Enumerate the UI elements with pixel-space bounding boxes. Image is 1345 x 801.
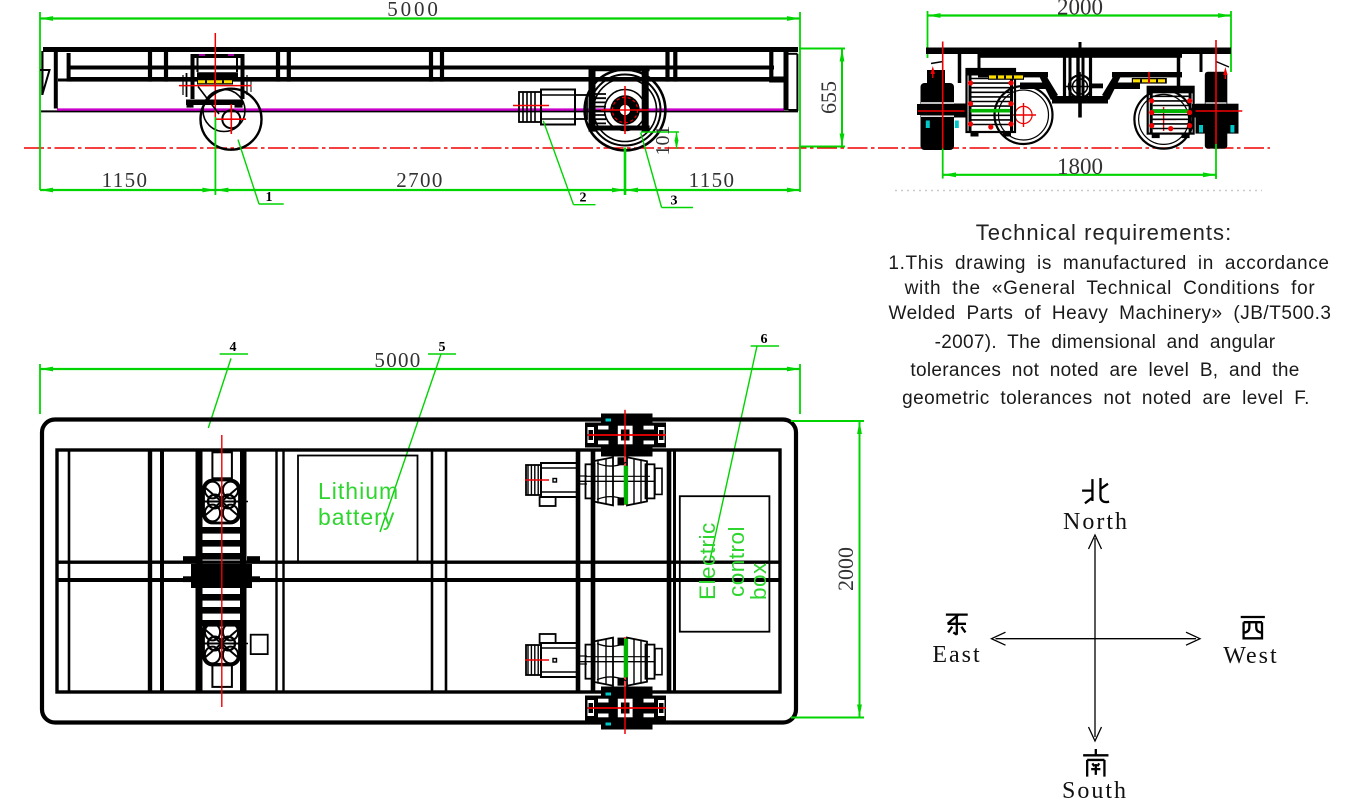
svg-text:Electric: Electric: [695, 522, 720, 600]
svg-text:with the «General Technical Co: with the «General Technical Conditions f…: [904, 278, 1316, 299]
svg-text:101: 101: [652, 126, 674, 156]
svg-text:1: 1: [266, 190, 273, 205]
svg-text:5000: 5000: [387, 0, 441, 21]
svg-text:West: West: [1223, 643, 1278, 669]
svg-text:1150: 1150: [689, 168, 736, 192]
svg-text:2000: 2000: [1057, 0, 1103, 20]
svg-text:1800: 1800: [1057, 154, 1103, 179]
svg-text:Welded Parts of Heavy Machiner: Welded Parts of Heavy Machinery» (JB/T50…: [888, 303, 1331, 324]
svg-text:2000: 2000: [833, 547, 858, 591]
svg-text:2700: 2700: [396, 168, 444, 192]
svg-text:1150: 1150: [102, 168, 149, 192]
svg-text:Technical requirements:: Technical requirements:: [976, 220, 1232, 245]
svg-text:2: 2: [580, 191, 587, 206]
svg-text:Lithium: Lithium: [318, 478, 399, 504]
svg-text:South: South: [1062, 778, 1128, 801]
svg-text:geometric tolerances not noted: geometric tolerances not noted are level…: [902, 388, 1310, 409]
svg-text:3: 3: [671, 194, 678, 209]
svg-text:6: 6: [761, 332, 768, 347]
svg-text:655: 655: [816, 81, 841, 114]
svg-text:box: box: [746, 562, 771, 600]
svg-text:North: North: [1063, 509, 1129, 535]
svg-text:-2007). The dimensional and an: -2007). The dimensional and angular: [935, 332, 1276, 353]
svg-text:tolerances not noted are level: tolerances not noted are level B, and th…: [910, 360, 1299, 381]
svg-text:battery: battery: [318, 504, 395, 530]
svg-text:1.This drawing is manufactured: 1.This drawing is manufactured in accord…: [888, 253, 1329, 274]
svg-text:5000: 5000: [374, 348, 421, 372]
svg-text:4: 4: [230, 340, 237, 355]
svg-text:5: 5: [439, 340, 446, 355]
svg-text:East: East: [932, 642, 981, 668]
